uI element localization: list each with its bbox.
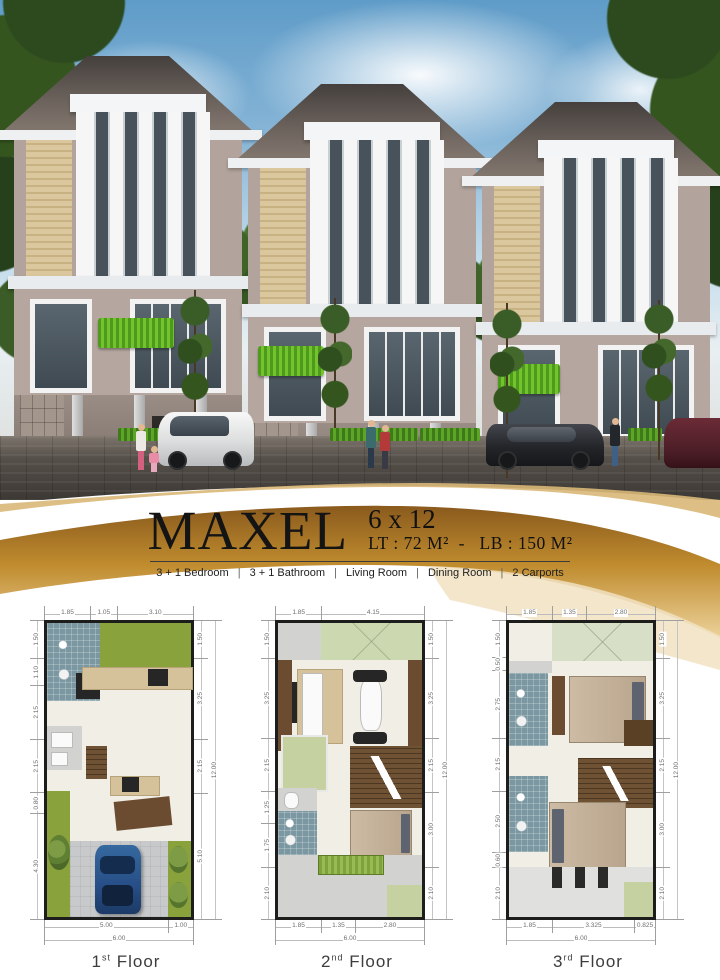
floorplan-3rd: 1.85 1.35 2.80 1.50 0.50 2.75 2.15 2.50 … (492, 606, 684, 971)
title-block: MAXEL 6 x 12 LT : 72 M² - LB : 150 M² 3 … (0, 505, 720, 579)
sink (148, 669, 168, 687)
dimension: 1.85 (275, 920, 321, 933)
person (610, 418, 620, 466)
dimension: 2.15 (30, 685, 44, 739)
dining-table (113, 797, 172, 832)
bay-pediment (538, 140, 674, 158)
features-bar: 3 + 1 Bedroom | 3 + 1 Bathroom | Living … (150, 561, 570, 579)
feature: 3 + 1 Bedroom (156, 567, 228, 579)
feature: 2 Carports (512, 567, 563, 579)
dimension: 1.50 (30, 620, 44, 658)
feature: Dining Room (428, 567, 492, 579)
dimension: 2.10 (492, 867, 506, 920)
bed (350, 810, 412, 858)
roof-garden (552, 623, 653, 661)
dimension: 1.00 (168, 920, 195, 933)
red-car (664, 418, 720, 468)
bush (169, 882, 188, 908)
toilet (284, 792, 299, 809)
wheel (223, 451, 242, 470)
bathroom (509, 673, 548, 747)
dimension: 1.35 (552, 606, 586, 620)
green-patch (624, 882, 653, 917)
brick-panel (26, 140, 72, 276)
post (598, 867, 608, 888)
inner-court (281, 735, 328, 792)
person (366, 420, 376, 468)
wood-floor (408, 660, 422, 751)
dimension: 5.00 (44, 920, 168, 933)
dimensions-bottom: 5.00 1.00 (44, 920, 194, 933)
person (149, 446, 159, 472)
dimension: 1.85 (506, 920, 552, 933)
column-window-bay (310, 140, 444, 304)
bathroom (278, 811, 317, 855)
brochure-page: MAXEL 6 x 12 LT : 72 M² - LB : 150 M² 3 … (0, 0, 720, 980)
rear-garden (100, 623, 191, 667)
building-render (0, 0, 720, 500)
product-area: LT : 72 M² - LB : 150 M² (368, 533, 572, 555)
floorplan-2nd: 1.85 4.15 1.50 3.25 2.15 1.25 1.75 2.10 (261, 606, 453, 971)
balcony-hedge (98, 318, 174, 348)
white-suv (158, 412, 254, 466)
product-name: MAXEL (148, 506, 349, 557)
dimension: 4.15 (321, 606, 425, 620)
bay-pediment (70, 94, 206, 112)
car-top-view (95, 845, 141, 914)
dimension: 2.10 (425, 867, 439, 920)
dimensions-bottom: 1.85 1.35 2.80 (275, 920, 425, 933)
separator: | (416, 567, 419, 579)
dimension: 1.50 (656, 620, 670, 658)
person (380, 425, 390, 469)
dimension: 2.50 (492, 791, 506, 852)
dimension-overall-width: 6.00 (506, 933, 656, 945)
dimension: 1.50 (261, 620, 275, 658)
stairs (350, 746, 422, 808)
brick-panel (260, 168, 306, 304)
dimensions-right: 1.50 3.25 2.15 3.00 2.10 (425, 620, 439, 920)
dimension: 3.25 (194, 658, 208, 739)
feature: Living Room (346, 567, 407, 579)
floorplans-row: 1.85 1.05 3.10 1.50 1.10 2.15 2.15 0.80 … (0, 606, 720, 971)
dimension-overall-height: 12.00 (439, 620, 453, 920)
dimension: 2.15 (30, 739, 44, 793)
dimension: 1.35 (321, 920, 355, 933)
post (552, 867, 562, 888)
dimension: 1.50 (425, 620, 439, 658)
dimensions-right: 1.50 3.25 2.15 3.00 2.10 (656, 620, 670, 920)
separator: | (238, 567, 241, 579)
dimension: 1.50 (194, 620, 208, 658)
stove (122, 777, 139, 792)
fixture (51, 752, 67, 766)
brick-panel (494, 186, 540, 322)
column-window-bay (544, 158, 678, 322)
post (575, 867, 585, 888)
dimension: 4.30 (30, 813, 44, 920)
dimension-overall-width: 6.00 (44, 933, 194, 945)
dimension: 1.85 (275, 606, 321, 620)
sofa (302, 673, 323, 737)
planter-box (318, 855, 383, 875)
wheel (168, 451, 187, 470)
separator: | (334, 567, 337, 579)
dimension-overall-width: 6.00 (275, 933, 425, 945)
feature: 3 + 1 Bathroom (250, 567, 326, 579)
dimension-overall-height: 12.00 (208, 620, 222, 920)
fixture (51, 732, 73, 749)
dimensions-left: 1.50 1.10 2.15 2.15 0.80 4.30 (30, 620, 44, 920)
window (30, 299, 92, 393)
dimension: 1.10 (30, 658, 44, 686)
dimension: 0.825 (634, 920, 656, 933)
chairs (353, 670, 388, 682)
floor-label: 3rd Floor (492, 945, 684, 971)
floorplan-drawing (44, 620, 194, 920)
window (364, 327, 460, 421)
dimensions-right: 1.50 3.25 2.15 5.10 (194, 620, 208, 920)
floor-label: 1st Floor (30, 945, 222, 971)
dimension: 3.00 (425, 792, 439, 867)
hall (509, 661, 552, 673)
dimensions-top: 1.85 1.35 2.80 (506, 606, 656, 620)
dimension: 2.15 (261, 738, 275, 792)
bay-pediment (304, 122, 440, 140)
dimensions-left: 1.50 0.50 2.75 2.15 2.50 0.60 2.10 (492, 620, 506, 920)
dimension: 1.50 (492, 620, 506, 657)
dimension: 3.25 (261, 658, 275, 738)
dimension: 2.10 (656, 867, 670, 920)
person (136, 424, 146, 470)
dimension: 1.05 (90, 606, 117, 620)
separator: | (501, 567, 504, 579)
dimension: 0.50 (492, 657, 506, 670)
roof-garden (321, 623, 422, 660)
hedge (420, 428, 480, 441)
floor-slab (8, 276, 248, 289)
dimension: 3.325 (552, 920, 634, 933)
dimension: 3.00 (656, 792, 670, 867)
floor-label: 2nd Floor (261, 945, 453, 971)
dimension-overall-height: 12.00 (670, 620, 684, 920)
dimensions-top: 1.85 1.05 3.10 (44, 606, 194, 620)
dimension: 3.25 (425, 658, 439, 739)
dining-table (360, 679, 382, 731)
dimension: 2.80 (355, 920, 425, 933)
dark-sedan (486, 424, 604, 466)
dimensions-bottom: 1.85 3.325 0.825 (506, 920, 656, 933)
bathroom (509, 776, 548, 852)
tv-console (292, 682, 296, 723)
stairs (86, 746, 108, 778)
dimension: 2.15 (194, 739, 208, 793)
dimension: 3.25 (656, 658, 670, 739)
column-window-bay (76, 112, 210, 276)
dimension: 1.75 (261, 823, 275, 867)
dimensions-top: 1.85 4.15 (275, 606, 425, 620)
wheel (571, 451, 590, 470)
chairs (353, 732, 388, 744)
stairs (578, 758, 653, 808)
floorplan-1st: 1.85 1.05 3.10 1.50 1.10 2.15 2.15 0.80 … (30, 606, 222, 971)
dimension: 3.10 (117, 606, 194, 620)
floorplan-drawing (275, 620, 425, 920)
dimensions-left: 1.50 3.25 2.15 1.25 1.75 2.10 (261, 620, 275, 920)
bush (169, 846, 188, 872)
dimension: 2.10 (261, 867, 275, 920)
balcony-hedge (258, 346, 324, 376)
wardrobe (552, 676, 565, 735)
dimension: 2.15 (425, 738, 439, 792)
dimension: 2.15 (656, 738, 670, 792)
dimension: 2.15 (492, 738, 506, 791)
dimension: 5.10 (194, 793, 208, 920)
tree-top-view (48, 835, 70, 870)
dimension: 0.80 (30, 792, 44, 813)
dimension: 0.60 (492, 852, 506, 867)
balcony (278, 623, 321, 660)
floorplan-drawing (506, 620, 656, 920)
dimension: 2.75 (492, 670, 506, 737)
kitchen-counter (82, 667, 193, 690)
green-patch (387, 885, 422, 917)
dresser (624, 720, 653, 746)
wheel (498, 451, 517, 470)
dimension: 2.80 (586, 606, 656, 620)
floor-slab (242, 304, 482, 317)
bed (549, 802, 626, 869)
dimension: 1.85 (506, 606, 552, 620)
dimension: 1.25 (261, 791, 275, 823)
product-size: 6 x 12 (368, 505, 572, 533)
dimension: 1.85 (44, 606, 90, 620)
